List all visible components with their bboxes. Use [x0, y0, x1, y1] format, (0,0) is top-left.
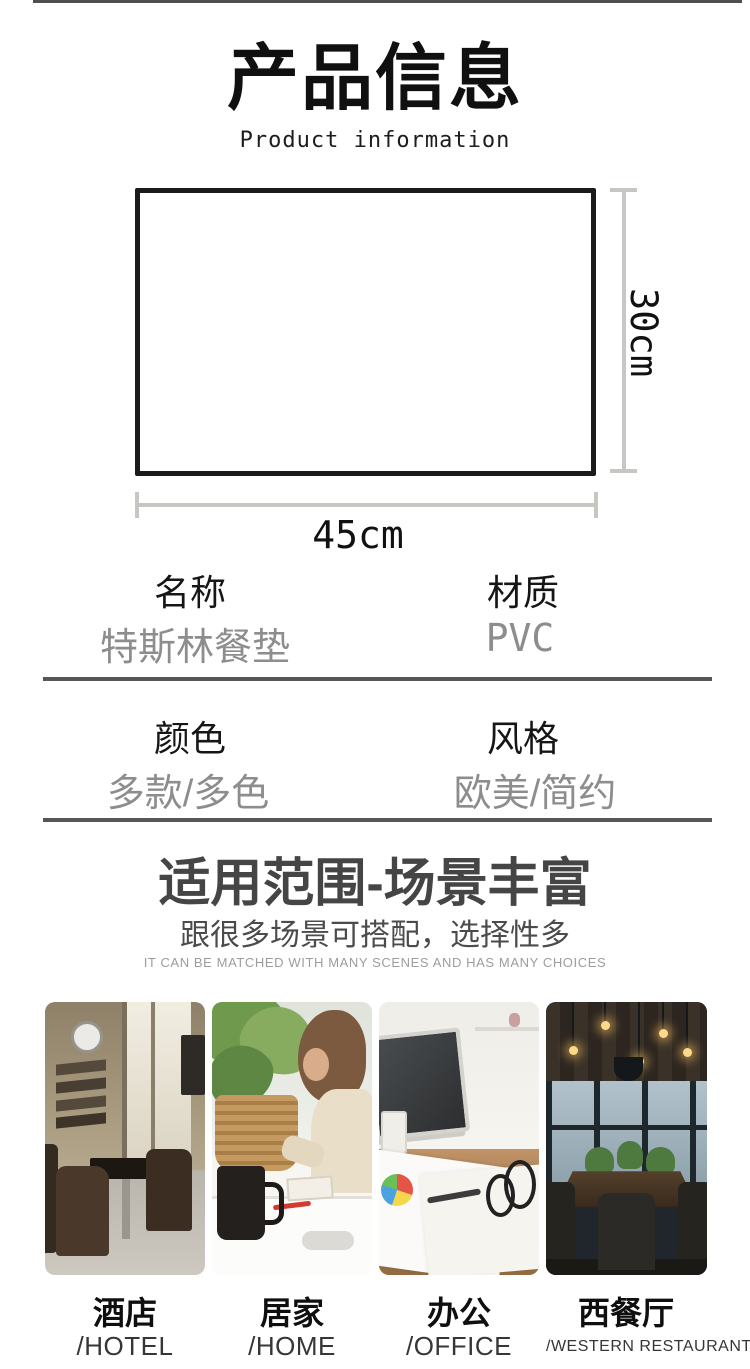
spec-value-material: PVC	[365, 616, 675, 660]
scene-label-hotel: 酒店	[45, 1288, 205, 1334]
office-white-mug	[381, 1111, 407, 1156]
placemat-size-rectangle	[135, 188, 596, 476]
bulb-cord	[604, 1002, 606, 1021]
scene-label-office-en: /OFFICE	[379, 1331, 539, 1362]
hotel-chair-front	[56, 1166, 109, 1256]
spec-label-name: 名称	[40, 564, 340, 616]
bulb-cord	[662, 1002, 664, 1029]
spec-value-color: 多款/多色	[33, 762, 343, 817]
hotel-tv	[181, 1035, 205, 1095]
office-scene-photo	[379, 1002, 539, 1275]
hotel-window-frame	[151, 1002, 155, 1160]
hotel-table-leg	[122, 1179, 130, 1239]
home-black-mug	[217, 1166, 265, 1240]
restaurant-window-frames	[546, 1081, 707, 1185]
height-dimension-cap-top	[610, 188, 637, 192]
height-dimension-label: 30cm	[622, 288, 665, 377]
scene-label-hotel-en: /HOTEL	[45, 1331, 205, 1362]
width-dimension-label: 45cm	[258, 513, 458, 557]
width-dimension-cap-left	[135, 492, 139, 518]
office-shelf	[475, 1027, 539, 1031]
hotel-scene-photo	[45, 1002, 205, 1275]
restaurant-plant	[646, 1147, 675, 1174]
home-wicker-basket	[215, 1095, 298, 1171]
restaurant-window-bar	[546, 1125, 707, 1130]
width-dimension-line	[135, 503, 598, 507]
hotel-magazine-rack	[56, 1062, 106, 1130]
scenes-section-title: 适用范围-场景丰富	[0, 841, 750, 916]
bulb-cord	[638, 1002, 640, 1057]
bulb-cord	[572, 1002, 574, 1046]
spec-label-style: 风格	[373, 710, 673, 762]
scenes-section-subtitle: 跟很多场景可搭配，选择性多	[0, 910, 750, 954]
hotel-wall-clock	[71, 1021, 103, 1053]
width-dimension-cap-right	[594, 492, 598, 518]
spec-value-style: 欧美/简约	[380, 762, 690, 817]
scene-label-western-restaurant-en: /WESTERN RESTAURANT	[546, 1338, 707, 1356]
spec-label-material: 材质	[373, 564, 673, 616]
scene-label-western-restaurant: 西餐厅	[546, 1288, 706, 1334]
office-flower	[509, 1013, 520, 1027]
home-keyboard	[302, 1231, 355, 1250]
page-title: 产品信息	[0, 40, 750, 119]
western-restaurant-scene-photo	[546, 1002, 707, 1275]
home-child-face	[303, 1048, 329, 1081]
restaurant-chair-right	[678, 1182, 707, 1264]
height-dimension-cap-bottom	[610, 469, 637, 473]
home-book	[286, 1175, 333, 1201]
product-info-page: 产品信息 Product information 30cm 45cm 名称 材质…	[0, 0, 750, 1369]
spec-value-name: 特斯林餐垫	[40, 616, 350, 671]
home-scene-photo	[212, 1002, 372, 1275]
page-subtitle-en: Product information	[0, 128, 750, 153]
restaurant-chair-left	[546, 1182, 575, 1264]
edison-bulb	[601, 1021, 610, 1030]
edison-bulb	[659, 1029, 668, 1038]
bulb-cord	[686, 1002, 688, 1048]
restaurant-pendant-lamp	[614, 1057, 643, 1082]
spec-divider-1	[43, 677, 712, 681]
restaurant-plant	[585, 1147, 614, 1174]
scene-label-home: 居家	[212, 1288, 372, 1334]
spec-divider-2	[43, 818, 712, 822]
office-glasses	[486, 1174, 515, 1217]
scenes-section-subtitle-en: IT CAN BE MATCHED WITH MANY SCENES AND H…	[0, 955, 750, 970]
scene-label-office: 办公	[379, 1288, 539, 1334]
top-section-divider	[33, 0, 742, 3]
hotel-chair-right	[146, 1149, 192, 1231]
scene-label-home-en: /HOME	[212, 1331, 372, 1362]
edison-bulb	[569, 1046, 578, 1055]
spec-label-color: 颜色	[40, 710, 340, 762]
restaurant-chair-center	[598, 1193, 656, 1269]
office-pie-chart	[381, 1174, 413, 1206]
restaurant-plant	[617, 1141, 643, 1168]
